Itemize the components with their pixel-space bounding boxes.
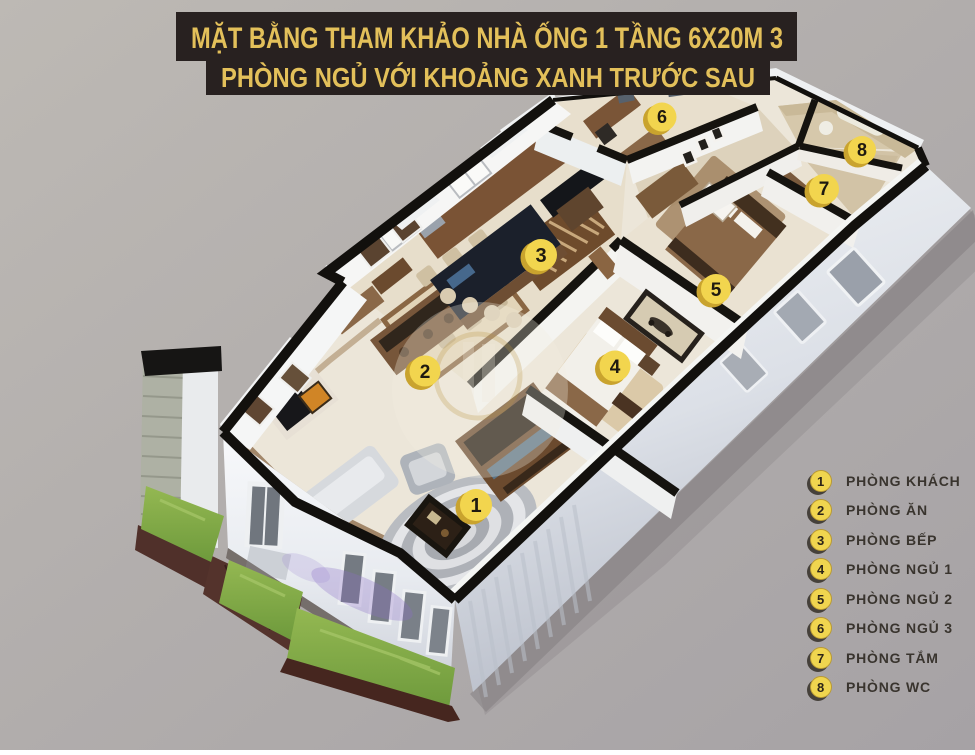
- svg-text:8: 8: [817, 680, 825, 695]
- svg-text:8: 8: [857, 140, 867, 160]
- svg-text:PHÒNG BẾP: PHÒNG BẾP: [846, 531, 937, 548]
- svg-text:7: 7: [819, 179, 830, 200]
- svg-text:MẶT BẰNG THAM KHẢO NHÀ ỐNG 1 T: MẶT BẰNG THAM KHẢO NHÀ ỐNG 1 TẦNG 6X20M …: [191, 21, 783, 55]
- svg-text:5: 5: [817, 592, 825, 607]
- svg-text:PHÒNG ĂN: PHÒNG ĂN: [846, 501, 928, 518]
- svg-text:PHÒNG NGỦ 3: PHÒNG NGỦ 3: [846, 619, 953, 636]
- svg-text:PHÒNG NGỦ 1: PHÒNG NGỦ 1: [846, 560, 953, 577]
- svg-text:PHÒNG NGỦ 2: PHÒNG NGỦ 2: [846, 590, 953, 607]
- svg-text:1: 1: [470, 495, 481, 517]
- svg-text:PHÒNG WC: PHÒNG WC: [846, 678, 931, 695]
- svg-text:PHÒNG NGỦ VỚI KHOẢNG XANH TRƯỚ: PHÒNG NGỦ VỚI KHOẢNG XANH TRƯỚC SAU: [221, 61, 755, 93]
- svg-text:PHÒNG TẮM: PHÒNG TẮM: [846, 649, 939, 666]
- svg-text:2: 2: [817, 503, 825, 518]
- svg-text:PHÒNG KHÁCH: PHÒNG KHÁCH: [846, 472, 961, 489]
- svg-text:4: 4: [610, 357, 621, 378]
- svg-text:7: 7: [817, 651, 825, 666]
- svg-text:3: 3: [817, 533, 825, 548]
- svg-text:6: 6: [817, 621, 825, 636]
- svg-text:6: 6: [657, 107, 667, 127]
- svg-text:1: 1: [817, 474, 825, 489]
- svg-text:2: 2: [420, 362, 431, 383]
- svg-text:3: 3: [535, 245, 546, 267]
- svg-text:5: 5: [711, 280, 722, 301]
- svg-text:4: 4: [817, 562, 825, 577]
